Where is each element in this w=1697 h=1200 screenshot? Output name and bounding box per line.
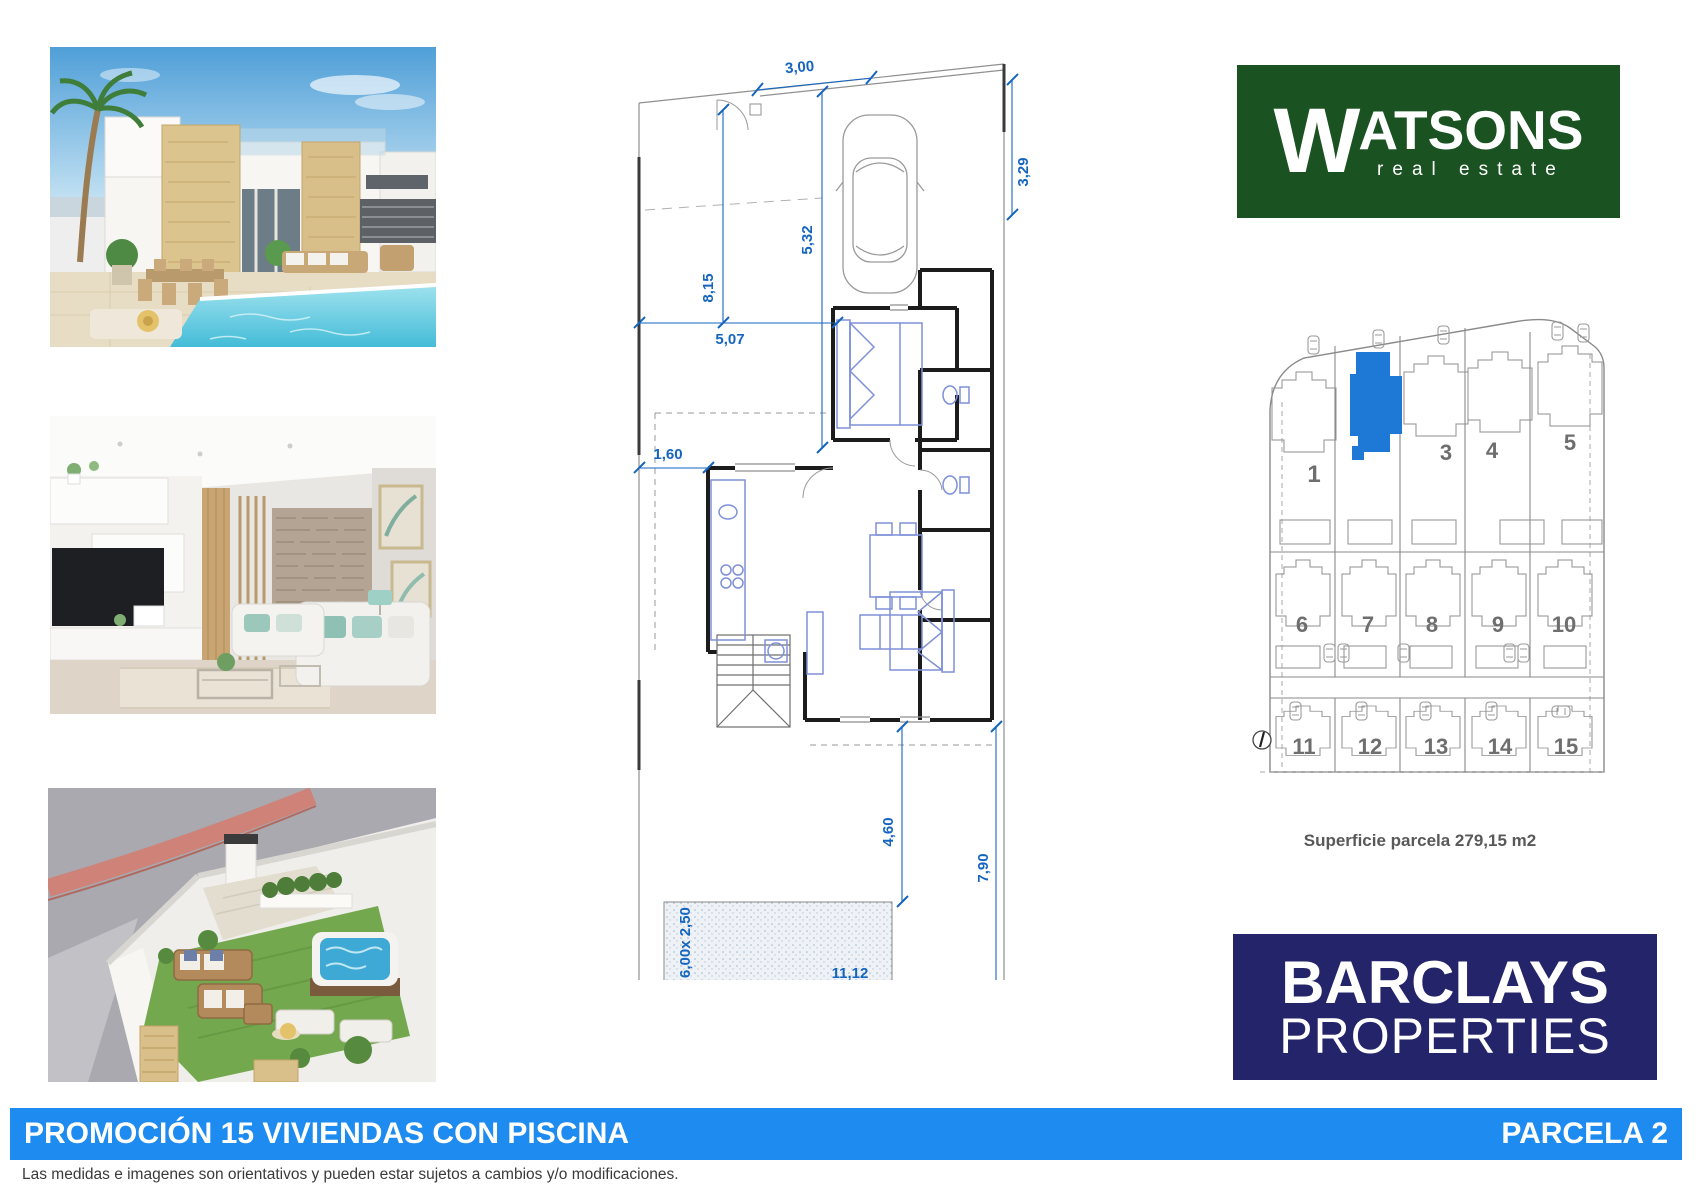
parcel-number-4: 4 <box>1486 438 1499 463</box>
watsons-wordmark: W ATSONS real estate <box>1274 104 1584 179</box>
dim-top-width: 3,00 <box>784 58 815 77</box>
photo-rooftop-terrace <box>48 788 436 1082</box>
parcel-number-13: 13 <box>1424 734 1448 759</box>
barclays-name: BARCLAYS <box>1281 953 1609 1013</box>
photo-exterior-pool <box>50 47 436 347</box>
rooftop-illustration <box>48 788 436 1082</box>
dim-side-offset: 1,60 <box>653 446 682 463</box>
parcel-number-8: 8 <box>1426 612 1438 637</box>
parcel-number-11: 11 <box>1292 734 1315 759</box>
promo-bar: PROMOCIÓN 15 VIVIENDAS CON PISCINA PARCE… <box>10 1108 1682 1160</box>
parcel-number-15: 15 <box>1554 734 1578 759</box>
parcel-number-5: 5 <box>1564 430 1576 455</box>
promo-title: PROMOCIÓN 15 VIVIENDAS CON PISCINA <box>24 1117 629 1151</box>
watsons-initial: W <box>1274 104 1359 179</box>
parcel-number-12: 12 <box>1358 734 1382 759</box>
parcel-area-caption: Superficie parcela 279,15 m2 <box>1253 831 1587 851</box>
parcel-number-3: 3 <box>1440 440 1452 465</box>
parcel-number-9: 9 <box>1492 612 1504 637</box>
parcel-2-highlight <box>1350 352 1402 460</box>
parcel-number-6: 6 <box>1296 612 1308 637</box>
dim-left-depth: 8,15 <box>700 273 717 302</box>
parcel-number-1: 1 <box>1307 461 1320 488</box>
barclays-logo: BARCLAYS PROPERTIES <box>1233 934 1657 1080</box>
floorplan-drawing: 3,00 3,29 5,32 8,15 5,07 1,60 4,60 7,90 … <box>560 40 1040 980</box>
living-room-illustration <box>50 416 436 714</box>
watsons-name-rest: ATSONS <box>1358 104 1583 156</box>
stairs <box>717 635 790 727</box>
dim-garden-depth: 7,90 <box>975 853 992 882</box>
siteplan-drawing: 1 3 4 5 6 7 8 9 10 11 12 13 14 15 <box>1252 302 1608 777</box>
parcel-number-7: 7 <box>1362 612 1374 637</box>
exterior-illustration <box>50 47 436 347</box>
parcel-number-10: 10 <box>1552 612 1576 637</box>
dim-mid-width: 5,07 <box>715 331 744 348</box>
car-icon <box>836 115 924 293</box>
parcel-badge: PARCELA 2 <box>1501 1117 1668 1151</box>
north-arrow-icon <box>1253 731 1271 749</box>
dim-right-depth: 3,29 <box>1015 157 1032 186</box>
photo-living-room <box>50 416 436 714</box>
dim-garage-length: 5,32 <box>799 225 816 254</box>
dim-pool-size: 6,00x 2,50 <box>677 907 694 978</box>
brochure-page: { "header": { "watsons": {"initial": "W"… <box>0 0 1697 1200</box>
watsons-logo: W ATSONS real estate <box>1237 65 1620 218</box>
disclaimer-text: Las medidas e imagenes son orientativos … <box>22 1166 679 1184</box>
barclays-subtitle: PROPERTIES <box>1279 1013 1610 1061</box>
parcel-number-14: 14 <box>1488 734 1513 759</box>
watsons-tagline: real estate <box>1377 160 1565 179</box>
dim-terrace-depth: 4,60 <box>880 817 897 846</box>
dim-garden-width: 11,12 <box>832 965 869 980</box>
